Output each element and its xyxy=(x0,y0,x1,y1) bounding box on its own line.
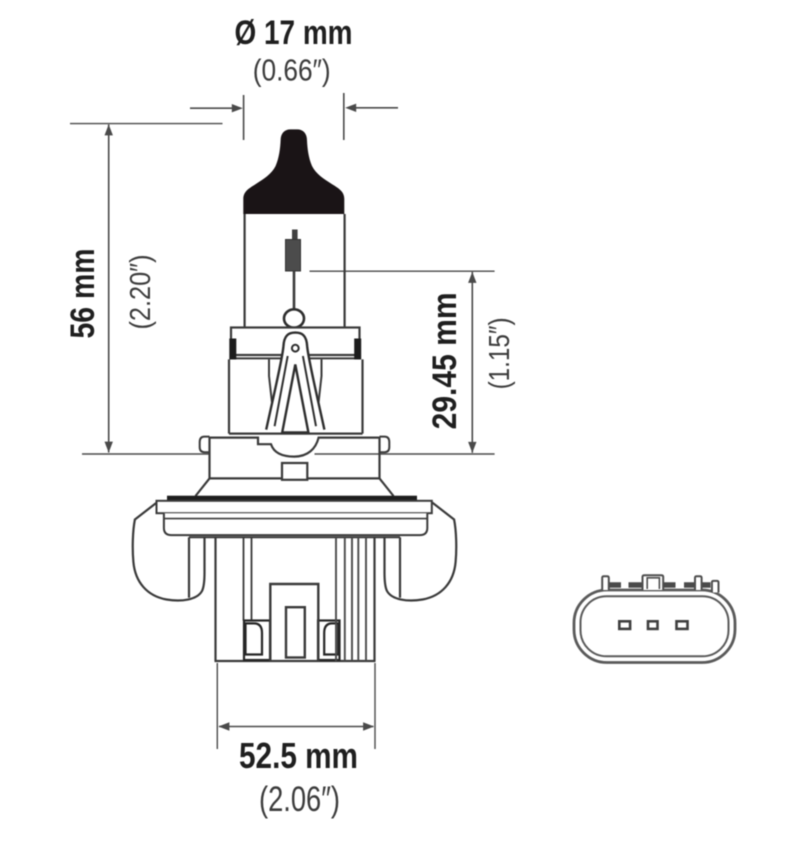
svg-text:52.5 mm: 52.5 mm xyxy=(239,735,358,776)
svg-text:56 mm: 56 mm xyxy=(64,249,102,339)
svg-text:(2.06″): (2.06″) xyxy=(259,780,340,819)
svg-text:(2.20″): (2.20″) xyxy=(125,255,157,330)
svg-text:(0.66″): (0.66″) xyxy=(253,53,331,88)
svg-text:Ø 17 mm: Ø 17 mm xyxy=(235,14,353,52)
svg-text:29.45 mm: 29.45 mm xyxy=(426,292,464,429)
svg-text:(1.15″): (1.15″) xyxy=(484,317,516,389)
